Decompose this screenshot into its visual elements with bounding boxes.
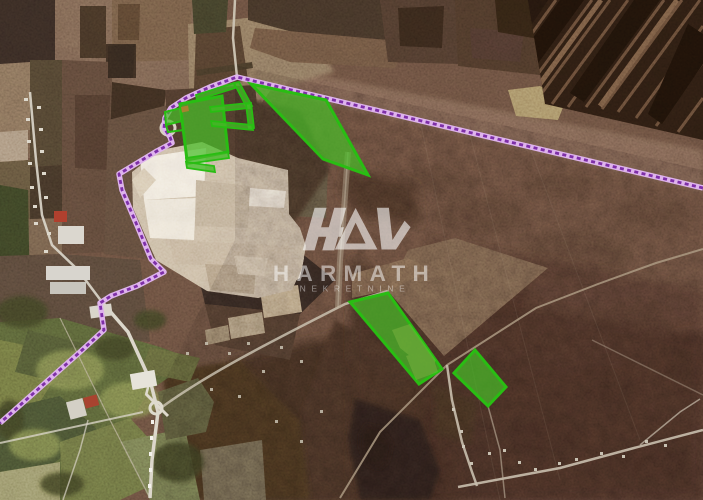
svg-text:HARMATH: HARMATH (273, 261, 436, 286)
svg-text:NEKRETNINE: NEKRETNINE (300, 284, 411, 294)
